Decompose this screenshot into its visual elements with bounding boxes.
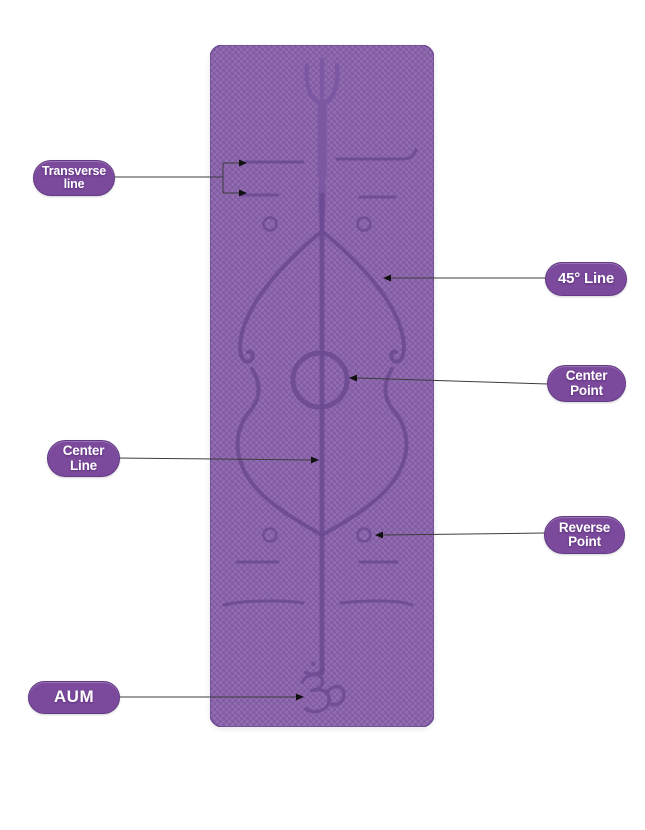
callout-reverse-point: Reverse Point: [544, 516, 625, 554]
callout-45-degree-line: 45° Line: [545, 262, 627, 296]
arrowhead-icon: [375, 532, 383, 539]
callout-transverse-line: Transverse line: [33, 160, 115, 196]
connector-line-reverse-point: [383, 533, 545, 535]
arrowhead-icon: [239, 190, 247, 197]
callout-aum: AUM: [28, 681, 120, 714]
arrowhead-icon: [349, 375, 357, 382]
arrowhead-icon: [239, 160, 247, 167]
connector-line-center-point: [357, 378, 548, 384]
callout-center-point: Center Point: [547, 365, 626, 402]
callout-center-line: Center Line: [47, 440, 120, 477]
connector-line-transverse: [113, 163, 239, 193]
connector-line-center-line: [118, 458, 311, 460]
arrowhead-icon: [383, 275, 391, 282]
arrowhead-icon: [311, 457, 319, 464]
arrowhead-icon: [296, 694, 304, 701]
product-annotation-image: trident: [0, 0, 645, 830]
